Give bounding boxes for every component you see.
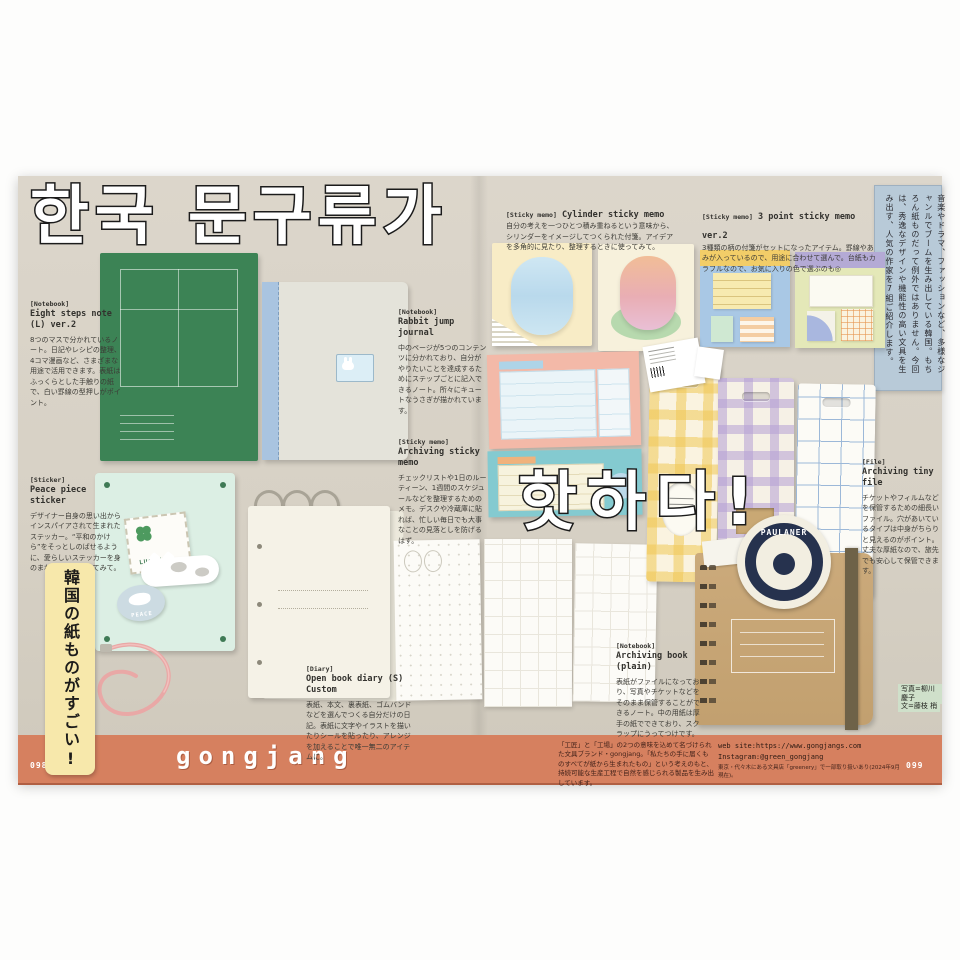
article-category: [Sticker] <box>30 476 126 484</box>
article-peace-sticker: [Sticker] Peace piece sticker デザイナー自身の思い… <box>30 476 126 574</box>
blue-cylinder <box>511 257 573 335</box>
article-title: Archiving tiny file <box>862 467 942 490</box>
article-three-point-memo: [Sticky memo] 3 point sticky memo ver.2 … <box>702 204 878 274</box>
planner-tab <box>498 457 536 465</box>
article-category: [Diary] <box>306 665 416 673</box>
article-category: [Sticky memo] <box>702 213 753 221</box>
article-category: [Notebook] <box>30 300 124 308</box>
article-title: Peace piece sticker <box>30 485 126 508</box>
clover-icon <box>135 525 153 543</box>
punch-hole <box>257 660 262 665</box>
striped-memo <box>740 317 774 342</box>
article-body: 8つのマスで分かれているノート。日記やレシピの整理、4コマ漫画など、さまざまな用… <box>30 335 124 409</box>
brand-links: web site:https://www.gongjangs.com Insta… <box>718 741 904 781</box>
article-title: Archiving sticky memo <box>398 447 488 470</box>
pink-cylinder <box>620 256 676 330</box>
article-body: 表紙、本文、裏表紙、ゴムバンドなどを選んでつくる自分だけの日記。表紙に文字やイラ… <box>306 700 416 763</box>
page-oval <box>424 550 442 572</box>
article-title: Rabbit jump journal <box>398 317 488 340</box>
article-title: Cylinder sticky memo <box>562 210 664 220</box>
text-credit: 文=藤枝 梢 <box>898 701 940 712</box>
page-oval <box>404 550 422 572</box>
magazine-photo: 한국 문구류가 핫하다! 音楽やドラマ、ファッションなど、多様なジャンルでブーム… <box>0 0 960 960</box>
weekly-planner-pink <box>487 351 641 449</box>
embossed-grid <box>120 269 238 387</box>
availability-note: 東京・代々木にある文具店「greenery」で一部取り扱いあり(2024年9月現… <box>718 765 904 781</box>
cat-patch <box>170 562 187 573</box>
cover-frame <box>731 619 835 673</box>
file-slot <box>822 398 850 407</box>
article-body: 中のページが5つのコンテンツに分かれており、自分がやりたいことを達成するためにス… <box>398 343 488 417</box>
archiving-book: PAULANER <box>695 553 873 725</box>
elastic-strap <box>845 548 858 730</box>
article-cylinder-sticky-memo: [Sticky memo] Cylinder sticky memo 自分の考え… <box>506 202 678 253</box>
footer-band: 098 gongjang 「工匠」と「工場」の2つの意味を込めて名づけられた文具… <box>18 735 942 785</box>
website-url: web site:https://www.gongjangs.com <box>718 741 904 752</box>
receipt-lines <box>648 347 674 352</box>
corner-dot <box>220 636 226 642</box>
quarter-circle-memo <box>807 311 835 341</box>
frame-lines <box>740 632 824 633</box>
article-archiving-book: [Notebook] Archiving book (plain) 表紙がファイ… <box>616 642 704 740</box>
page-number-right: 099 <box>906 761 923 770</box>
article-archiving-tiny-file: [File] Archiving tiny file チケットやフィルムなどを保… <box>862 458 942 577</box>
article-rabbit-journal: [Notebook] Rabbit jump journal 中のページが5つの… <box>398 308 488 416</box>
article-body: チケットやフィルムなどを保管するための細長いファイル。穴があいているタイプは中身… <box>862 493 942 577</box>
blank-memo <box>809 275 873 307</box>
planner-rows <box>499 369 597 439</box>
title-rule <box>278 590 368 591</box>
punch-hole <box>257 602 262 607</box>
article-body: チェックリストや1日のルーティーン、1週間のスケジュールなどを整理するためのメモ… <box>398 473 488 547</box>
rabbit-icon <box>342 361 354 370</box>
korean-title-top: 한국 문구류가 <box>30 182 448 252</box>
corner-dot <box>220 482 226 488</box>
file-slot <box>742 392 770 401</box>
article-eight-steps-note: [Notebook] Eight steps note (L) ver.2 8つ… <box>30 300 124 408</box>
dove-sticker: PEACE <box>115 583 167 624</box>
planner-tab <box>499 361 543 370</box>
article-category: [File] <box>862 458 942 466</box>
cat-patch <box>195 567 210 577</box>
article-archiving-sticky-memo: [Sticky memo] Archiving sticky memo チェック… <box>398 438 488 546</box>
cylinder-memo-blue <box>492 243 592 346</box>
article-body: 表紙がファイルになっており、写真やチケットなどをそのまま保管することができるノー… <box>616 677 704 740</box>
article-title: Open book diary (S) Custom <box>306 674 416 697</box>
rabbit-journal <box>262 282 408 460</box>
korean-title-middle: 핫하다! <box>518 468 764 538</box>
spiral-binding <box>709 565 716 713</box>
article-body: 3種類の柄の付箋がセットになったアイテム。罫線やあみが入っているので、用途に合わ… <box>702 243 878 275</box>
small-green-memo <box>711 316 733 342</box>
embossed-lines <box>120 415 174 441</box>
side-ribbon-text: 韓国の紙ものがすごい! <box>58 569 82 770</box>
article-category: [Sticky memo] <box>506 211 557 219</box>
article-category: [Sticky memo] <box>398 438 488 446</box>
diary-page-grid <box>484 539 572 707</box>
magazine-spread: 한국 문구류가 핫하다! 音楽やドラマ、ファッションなど、多様なジャンルでブーム… <box>18 176 942 783</box>
cylinder-memo-pink <box>598 244 694 351</box>
article-category: [Notebook] <box>616 642 704 650</box>
dove-sticker-label: PEACE <box>131 611 153 619</box>
journal-spine <box>262 282 279 460</box>
planner-column <box>597 368 631 437</box>
intro-text: 音楽やドラマ、ファッションなど、多様なジャンルでブームを生み出している韓国。もち… <box>874 185 955 391</box>
instagram-handle: Instagram:@green_gongjang <box>718 752 904 763</box>
dove-icon <box>128 592 151 606</box>
brand-description: 「工匠」と「工場」の2つの意味を込めて名づけられた文具ブランド・gongjang… <box>558 741 714 788</box>
lined-memo <box>713 273 771 309</box>
coaster-emblem <box>773 553 795 575</box>
side-ribbon: 韓国の紙ものがすごい! <box>45 563 95 775</box>
punch-hole <box>257 544 262 549</box>
barcode <box>650 366 666 378</box>
title-rule <box>278 608 368 609</box>
article-open-book-diary: [Diary] Open book diary (S) Custom 表紙、本文… <box>306 665 416 763</box>
grid-memo <box>841 309 873 341</box>
article-category: [Notebook] <box>398 308 488 316</box>
ticket-tag <box>694 346 724 379</box>
article-body: 自分の考えを一つひとつ積み重ねるという意味から、シリンダーをイメージしてつくられ… <box>506 221 678 253</box>
article-title: Archiving book (plain) <box>616 651 704 674</box>
article-title: Eight steps note (L) ver.2 <box>30 309 124 332</box>
cat-sticker <box>140 554 220 587</box>
rabbit-sticker <box>336 354 374 382</box>
